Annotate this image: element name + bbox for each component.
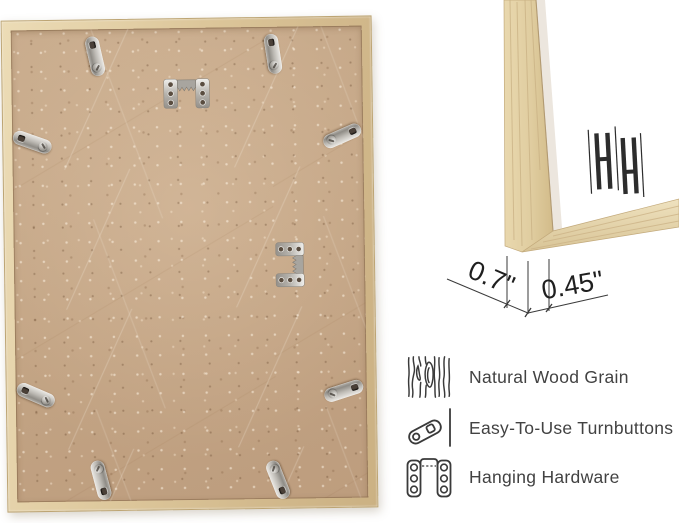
sawtooth-hanger-top (162, 78, 210, 110)
feature-label: Easy-To-Use Turnbuttons (469, 418, 673, 439)
sawtooth-hanger-side (275, 241, 306, 287)
frame-back-panel (1, 15, 379, 512)
brand-logo-hh-icon (588, 125, 644, 200)
turnbutton-icon (403, 407, 455, 449)
hanging-hardware-icon (403, 455, 455, 499)
wood-grain-icon (403, 355, 455, 399)
feature-label: Natural Wood Grain (469, 367, 629, 388)
feature-row-turnbuttons: Easy-To-Use Turnbuttons (403, 404, 673, 452)
depth-dimension-label: 0.7" (464, 255, 519, 301)
feature-label: Hanging Hardware (469, 467, 620, 488)
feature-row-hanging-hardware: Hanging Hardware (403, 453, 620, 501)
frame-corner-closeup: 0.7" 0.45" (430, 0, 679, 340)
feature-row-wood-grain: Natural Wood Grain (403, 353, 629, 401)
turnbutton-hole (89, 41, 96, 49)
turnbutton-hole (268, 39, 275, 47)
